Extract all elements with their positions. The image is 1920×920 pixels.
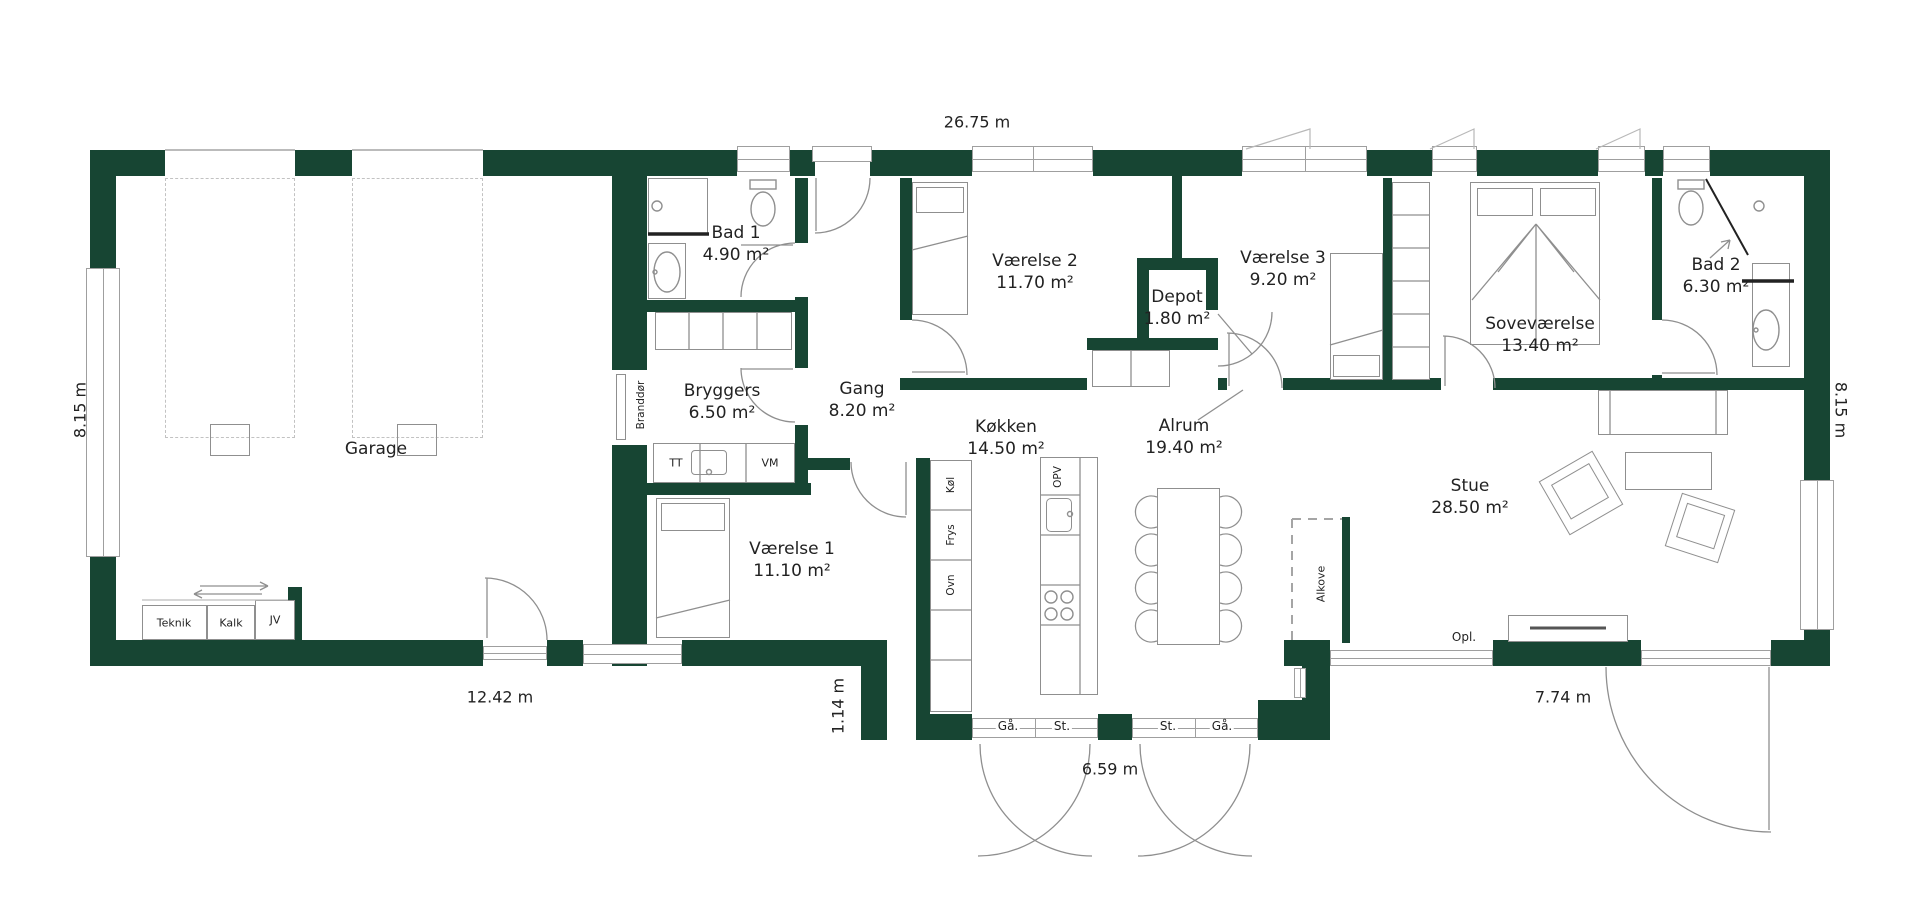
room-label-sovevaerelse: Soveværelse 13.40 m² (1485, 313, 1595, 357)
room-label-koekken: Køkken 14.50 m² (967, 416, 1044, 460)
dryer-label: TT (669, 457, 682, 470)
window-tilt-marks (1246, 129, 1640, 149)
freezer-label: Frys (945, 524, 957, 545)
toilet-icon (1679, 191, 1703, 225)
shower-head-icon (652, 201, 662, 211)
room-name: Værelse 3 (1240, 247, 1326, 269)
dimension-right: 8.15 m (1832, 382, 1851, 438)
room-area: 4.90 m² (703, 244, 770, 266)
room-label-gang: Gang 8.20 m² (829, 378, 896, 422)
sink-icon (1753, 310, 1779, 350)
room-area: 11.10 m² (749, 560, 835, 582)
room-label-stue: Stue 28.50 m² (1431, 475, 1508, 519)
plan-linework (0, 0, 1920, 920)
toilet-icon (1678, 180, 1704, 189)
door-leaf-label-gaa: Gå. (1210, 719, 1234, 733)
sink-icon (654, 252, 680, 292)
kalk-label: Kalk (219, 617, 242, 630)
faucet-icon (707, 470, 712, 475)
room-name: Gang (829, 378, 896, 400)
room-label-alrum: Alrum 19.40 m² (1145, 415, 1222, 459)
door-leaf-label-st: St. (1052, 719, 1072, 733)
room-name: Køkken (967, 416, 1044, 438)
door-leaf-label-gaa: Gå. (996, 719, 1020, 733)
fridge-label: Køl (945, 477, 957, 493)
dishwasher-label: OPV (1052, 466, 1064, 488)
shower-spray-icon (1747, 192, 1759, 220)
room-area: 11.70 m² (992, 272, 1078, 294)
dimension-left: 8.15 m (71, 382, 90, 438)
room-name: Værelse 1 (749, 538, 835, 560)
room-name: Soveværelse (1485, 313, 1595, 335)
room-label-vaerelse2: Værelse 2 11.70 m² (992, 250, 1078, 294)
room-label-garage: Garage (345, 438, 407, 460)
fire-door-label: Branddør (635, 381, 647, 430)
dimension-stue-bottom: 7.74 m (1535, 688, 1591, 707)
dimension-terrace-doors: 6.59 m (1082, 760, 1138, 779)
cooktop-icon (1061, 608, 1073, 620)
room-area: 19.40 m² (1145, 437, 1222, 459)
room-area: 6.50 m² (684, 402, 761, 424)
room-area: 28.50 m² (1431, 497, 1508, 519)
room-label-vaerelse1: Værelse 1 11.10 m² (749, 538, 835, 582)
room-name: Stue (1431, 475, 1508, 497)
shower-head-icon (1754, 201, 1764, 211)
toilet-icon (750, 180, 776, 189)
room-name: Depot (1144, 286, 1211, 308)
room-name: Bad 2 (1683, 254, 1750, 276)
dimension-top: 26.75 m (944, 113, 1010, 132)
room-name: Garage (345, 438, 407, 460)
room-label-bad2: Bad 2 6.30 m² (1683, 254, 1750, 298)
room-area: 9.20 m² (1240, 269, 1326, 291)
room-label-depot: Depot 1.80 m² (1144, 286, 1211, 330)
door-swing-arcs (485, 178, 1771, 856)
oven-label: Ovn (945, 574, 957, 595)
room-area: 8.20 m² (829, 400, 896, 422)
toilet-icon (751, 192, 775, 226)
teknik-label: Teknik (157, 617, 191, 630)
shower-partitions (648, 179, 1794, 281)
room-name: Værelse 2 (992, 250, 1078, 272)
room-label-bryggers: Bryggers 6.50 m² (684, 380, 761, 424)
dimension-garage-bottom: 12.42 m (467, 688, 533, 707)
door-leaf-label-st: St. (1158, 719, 1178, 733)
room-name: Alrum (1145, 415, 1222, 437)
cooktop-icon (1061, 591, 1073, 603)
cooktop-icon (1045, 591, 1057, 603)
room-name: Bad 1 (703, 222, 770, 244)
openable-label: Opl. (1452, 630, 1476, 644)
cooktop-icon (1045, 608, 1057, 620)
faucet-icon (1068, 512, 1073, 517)
alkove-label: Alkove (1315, 566, 1328, 603)
jv-label: JV (270, 614, 281, 627)
faucet-icon (1754, 328, 1758, 332)
dimension-recess: 1.14 m (829, 678, 848, 734)
room-area: 1.80 m² (1144, 308, 1211, 330)
washer-label: VM (761, 457, 778, 470)
faucet-icon (653, 270, 657, 274)
room-area: 6.30 m² (1683, 276, 1750, 298)
floor-plan: Garage Bad 1 4.90 m² Bryggers 6.50 m² Ga… (0, 0, 1920, 920)
shower-spray-icon (645, 192, 657, 220)
room-area: 13.40 m² (1485, 335, 1595, 357)
room-area: 14.50 m² (967, 438, 1044, 460)
room-name: Bryggers (684, 380, 761, 402)
room-label-vaerelse3: Værelse 3 9.20 m² (1240, 247, 1326, 291)
room-label-bad1: Bad 1 4.90 m² (703, 222, 770, 266)
